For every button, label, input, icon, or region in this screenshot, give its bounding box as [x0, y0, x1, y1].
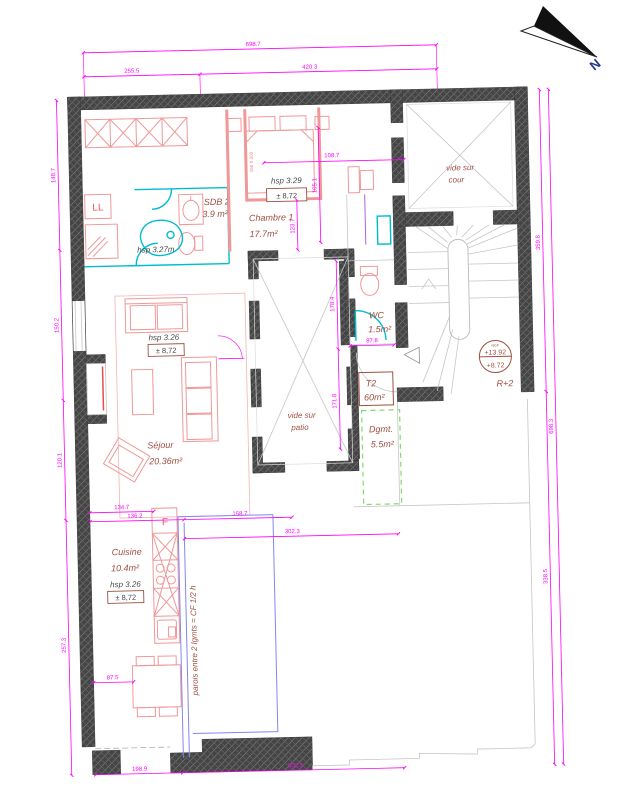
dim-left-2: 150.2 [54, 317, 60, 333]
wall-bottom-left-a [92, 750, 121, 775]
vide-sur-patio: vide sur patio [253, 257, 353, 465]
cuisine-room: F Cuisine 10.4m² hsp 3.26 ± 8,72 [90, 508, 182, 749]
left-wall-window [73, 301, 86, 351]
room-label-patio-2: patio [290, 423, 309, 432]
wc-door-leaf [355, 311, 356, 341]
vide-sur-cour: vide sur cour [407, 102, 513, 208]
dim-cuisine-a: 134.7 [114, 505, 130, 511]
desk [348, 166, 374, 193]
sejour-room: hsp 3.26 ± 8,72 Séjour 20.36m² [85, 293, 250, 519]
level-lower: +8.72 [487, 362, 505, 369]
wall-cour-bottom-a [405, 211, 453, 226]
dimensions: 698.7 255.5 420.3 698.3 359.8 338.5 148.… [48, 35, 563, 775]
chambre1-room: 160 X 200 hsp 3.29 ± 8,72 Chambre 1 17.7… [85, 106, 391, 267]
kitchen-counter [152, 508, 180, 644]
patio-pillar [327, 461, 359, 472]
fireplace-jamb-bottom [88, 414, 107, 423]
terrace-outline [304, 399, 535, 770]
plan-group: vide sur cour [48, 35, 563, 775]
hsp-cuisine: hsp 3.26 [110, 580, 141, 590]
room-area-sejour: 20.36m² [148, 456, 183, 467]
dim-cuisine-d: 302.3 [285, 529, 301, 535]
sejour-door-swing [218, 335, 243, 359]
sejour-door-mark [218, 358, 244, 359]
level-sejour: ± 8,72 [156, 346, 177, 355]
room-area-cuisine: 10.4m² [111, 563, 140, 574]
dim-left-3: 120.1 [57, 452, 63, 468]
wall-stair-left-a [393, 227, 406, 285]
room-label-dgmt: Dgmt. [369, 424, 393, 435]
level-cuisine: ± 8,72 [115, 593, 136, 602]
wall-entry-side [397, 387, 443, 402]
wc-wall-top [348, 260, 394, 261]
dim-top-overall: 698.7 [246, 42, 262, 48]
dim-right-overall: 698.3 [549, 418, 555, 434]
room-label-sdb2: SDB 2 [204, 197, 230, 208]
dim-chambre-width: 108.7 [324, 153, 340, 159]
corridor-wall [84, 264, 229, 267]
stair-direction-chevron [422, 279, 436, 289]
nightstand-right [315, 116, 329, 129]
room-area-sdb2: 3.9 m² [202, 209, 229, 220]
dim-bottom-left: 198.9 [132, 767, 148, 773]
entry-direction-arrow [404, 347, 419, 363]
level-marker: NGF +13.92 +8.72 [479, 340, 512, 373]
dim-cuisine-b: 136.2 [127, 514, 143, 520]
patio-pillar [347, 367, 358, 405]
room-label-cour-1: vide sur [446, 163, 475, 173]
opening-dashed-line [95, 747, 170, 749]
hsp-corridor: hsp 3.27m [137, 245, 175, 255]
dim-bottom-right: 502.5 [288, 763, 304, 769]
terrace-top-line [354, 503, 530, 507]
wall-cour-left-c [393, 196, 406, 227]
dim-right-upper: 359.8 [536, 234, 542, 250]
dim-left-4: 257.3 [62, 637, 68, 653]
room-area-chambre1: 17.7m² [249, 228, 278, 239]
room-area-dgmt: 5.5m² [371, 439, 395, 450]
room-label-patio-1: vide sur [288, 411, 317, 421]
dim-cuisine-c: 158.7 [232, 511, 248, 517]
t2-area: 60m² [364, 392, 386, 402]
sofa-top [125, 298, 188, 333]
north-arrow: N [521, 6, 604, 73]
level-ngf: NGF [491, 343, 498, 347]
washer-label: LL [92, 202, 104, 213]
nightstand-left [227, 118, 241, 131]
dim-chambre-depth: 123.7 [290, 218, 296, 234]
dim-patio-upper: 178.4 [330, 296, 336, 312]
toilet-wc [360, 266, 379, 295]
room-label-cuisine: Cuisine [112, 547, 142, 558]
fireplace-jamb-top [86, 354, 105, 363]
room-label-chambre1: Chambre 1 [249, 212, 294, 223]
cf-line [184, 523, 189, 758]
wardrobe [85, 117, 188, 147]
patio-pillar [345, 299, 356, 337]
wc-room: WC 1.5m² [348, 260, 396, 345]
bed-size-label: 160 X 200 [249, 151, 254, 172]
cf-line [178, 515, 273, 517]
stair-core [448, 239, 470, 339]
wall-top [67, 87, 527, 110]
fireplace [86, 363, 106, 414]
sdb2-room: LL SDB 2 [83, 188, 232, 267]
hsp-sejour: hsp 3.26 [148, 333, 179, 343]
washbasin [179, 194, 204, 225]
nook-partition [365, 194, 366, 244]
room-label-wc: WC [369, 310, 385, 320]
cf-line [178, 517, 183, 758]
cf-separation: parois entre 2 lgmts = CF 1/2 h [178, 515, 278, 758]
cour-cross [407, 102, 513, 208]
shower [85, 224, 118, 259]
dim-top-right: 420.3 [302, 65, 318, 71]
window-gap [73, 301, 86, 351]
level-upper: +13.92 [484, 349, 506, 356]
dim-right-lower: 338.5 [543, 568, 549, 584]
floor-plan-drawing: vide sur cour [0, 0, 628, 800]
bed-alcove-wall [245, 107, 321, 200]
floor-label: R+2 [497, 378, 514, 388]
dim-top-left: 255.5 [124, 69, 140, 75]
t2-label: T2 [366, 378, 377, 388]
sofa-right [181, 357, 218, 442]
dim-table-offset: 87.5 [107, 675, 119, 681]
fire-wall-note: parois entre 2 lgmts = CF 1/2 h [188, 585, 200, 697]
sdb-door-swing [152, 189, 172, 209]
sdb-wall-top [135, 188, 228, 190]
dim-wardrobe-height: 105.1 [312, 177, 318, 193]
wall-right [514, 87, 534, 392]
wall-cour-bottom-b [493, 210, 517, 225]
floor-plan-canvas: vide sur cour [0, 0, 628, 800]
dim-left-1: 148.7 [51, 167, 57, 183]
wall-cour-left-a [390, 90, 403, 123]
room-label-sejour: Séjour [147, 440, 174, 451]
room-area-wc: 1.5m² [368, 324, 392, 335]
hand-basin [377, 216, 391, 244]
patio-cross [253, 257, 353, 465]
armchair [103, 438, 149, 482]
hsp-chambre: hsp 3.29 [271, 176, 302, 186]
dim-wc-width: 87.8 [366, 338, 378, 344]
cf-line [188, 515, 278, 734]
wall-stair-left-b [395, 303, 408, 348]
dining-table [132, 656, 181, 717]
coffee-table [132, 369, 154, 414]
room-label-cour-2: cour [448, 175, 464, 184]
north-label: N [587, 56, 604, 74]
dim-patio-lower: 171.8 [332, 393, 338, 409]
fridge-label: F [162, 517, 168, 528]
level-chambre: ± 8,72 [276, 191, 297, 200]
